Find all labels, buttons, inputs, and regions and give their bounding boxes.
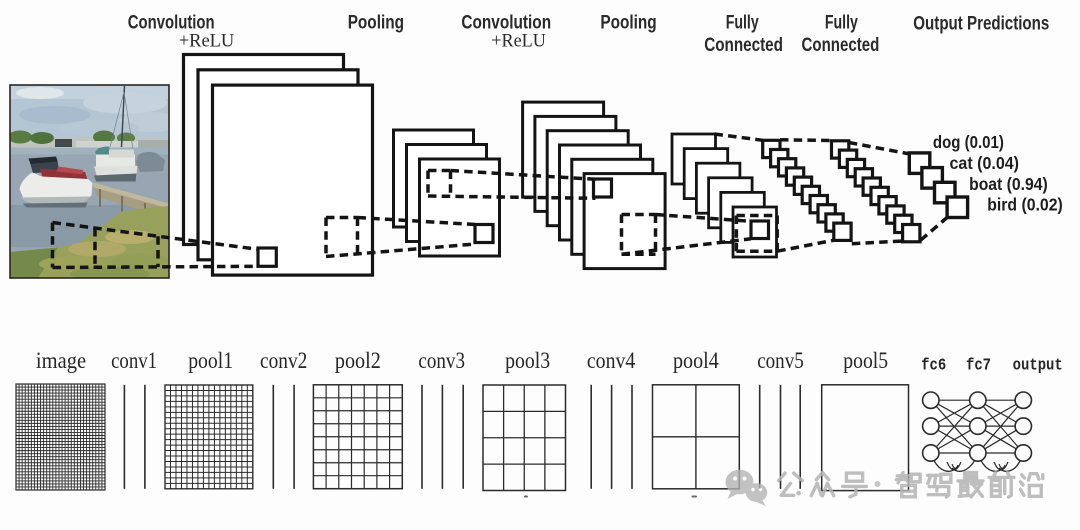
svg-text:+ReLU: +ReLU [491,31,546,52]
svg-text:pool1: pool1 [188,348,233,374]
svg-text:conv2: conv2 [260,348,307,374]
svg-text:conv1: conv1 [111,348,157,374]
svg-text:Connected: Connected [704,34,783,56]
svg-text:bird (0.02): bird (0.02) [987,195,1063,215]
svg-text:output: output [1013,356,1063,375]
svg-text:dog (0.01): dog (0.01) [933,132,1004,152]
svg-text:pool5: pool5 [843,348,888,374]
svg-text:cat (0.04): cat (0.04) [950,153,1020,173]
svg-text:image: image [36,348,86,374]
svg-text:conv5: conv5 [757,348,804,374]
svg-text:pool3: pool3 [505,348,550,374]
svg-text:fc7: fc7 [966,356,991,375]
svg-text:conv3: conv3 [418,348,465,374]
svg-text:Output Predictions: Output Predictions [913,12,1049,34]
svg-text:pool4: pool4 [673,348,719,374]
svg-text:boat (0.94): boat (0.94) [969,174,1048,194]
svg-text:pool2: pool2 [335,348,381,374]
svg-text:Pooling: Pooling [348,12,404,34]
svg-text:Fully: Fully [825,12,858,34]
svg-text:Fully: Fully [726,12,759,34]
svg-text:Pooling: Pooling [600,12,656,34]
svg-text:+ReLU: +ReLU [179,31,235,52]
svg-text:conv4: conv4 [587,348,636,374]
svg-text:Connected: Connected [802,34,880,56]
svg-text:fc6: fc6 [921,356,946,375]
